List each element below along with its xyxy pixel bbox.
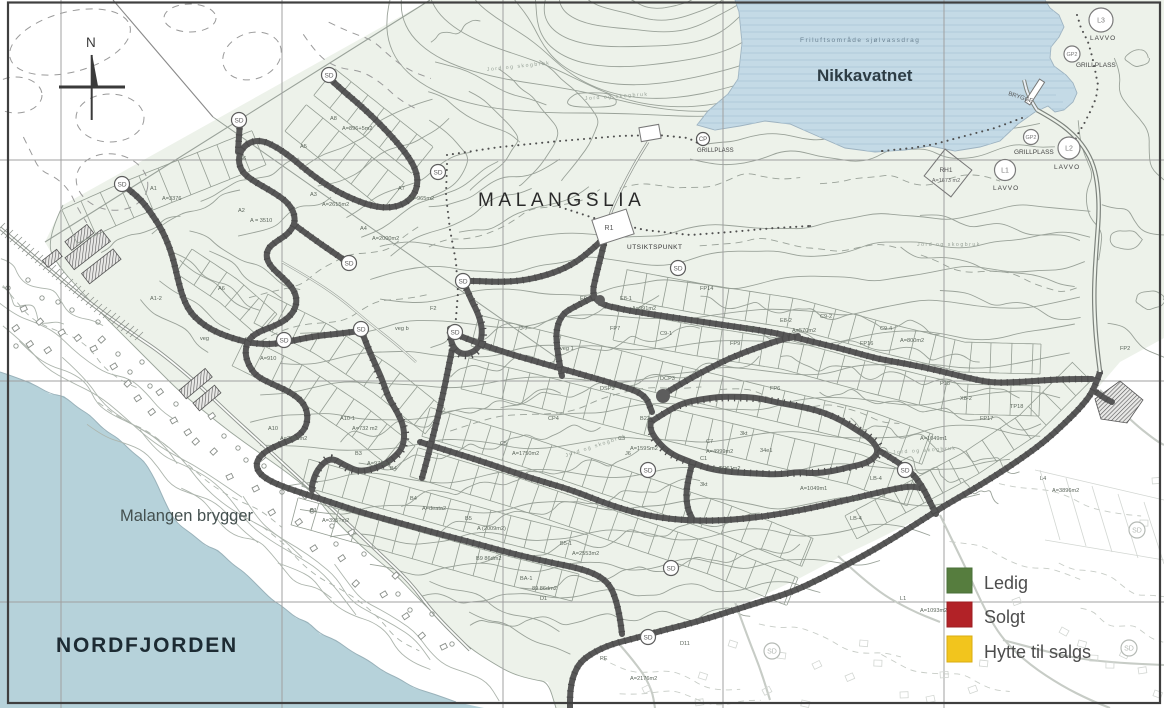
svg-text:SD: SD — [1132, 528, 1142, 535]
svg-text:FP16: FP16 — [860, 341, 873, 347]
svg-text:A2: A2 — [238, 208, 245, 214]
svg-text:A=159Sm2: A=159Sm2 — [630, 446, 658, 452]
svg-text:C9-1: C9-1 — [660, 331, 672, 337]
svg-text:3kt: 3kt — [700, 482, 708, 488]
svg-text:B1: B1 — [310, 508, 317, 514]
svg-text:L1: L1 — [1001, 168, 1009, 175]
svg-text:LAVVO: LAVVO — [993, 185, 1019, 192]
svg-text:D1: D1 — [540, 596, 547, 602]
svg-text:A4: A4 — [360, 226, 367, 232]
svg-text:Solgt: Solgt — [984, 607, 1025, 627]
svg-text:A7: A7 — [398, 186, 405, 192]
svg-text:A=1049m1: A=1049m1 — [800, 486, 827, 492]
svg-text:C5: C5 — [500, 441, 507, 447]
svg-text:E8-2: E8-2 — [780, 318, 792, 324]
svg-text:FP2: FP2 — [1120, 346, 1130, 352]
svg-text:DCP3: DCP3 — [660, 376, 675, 382]
svg-text:J-7: J-7 — [520, 326, 528, 332]
svg-text:D11: D11 — [680, 641, 690, 647]
svg-text:A=deata2: A=deata2 — [422, 506, 446, 512]
svg-text:L2: L2 — [1065, 146, 1073, 153]
svg-text:SD: SD — [643, 634, 652, 641]
svg-text:F2: F2 — [430, 306, 437, 312]
svg-text:SD: SD — [324, 72, 333, 79]
svg-text:SD: SD — [458, 278, 467, 285]
svg-text:SD: SD — [900, 467, 909, 474]
svg-text:A = 3510: A = 3510 — [250, 218, 272, 224]
svg-text:Malangen brygger: Malangen brygger — [120, 507, 254, 525]
svg-text:X8-2: X8-2 — [960, 396, 972, 402]
svg-text:C1: C1 — [700, 456, 707, 462]
svg-text:SD: SD — [673, 265, 682, 272]
svg-text:A=2176m2: A=2176m2 — [630, 676, 657, 682]
svg-text:FP17: FP17 — [980, 416, 993, 422]
svg-text:A1: A1 — [150, 186, 157, 192]
svg-text:veg b: veg b — [395, 326, 409, 332]
svg-text:A=896+5m2: A=896+5m2 — [342, 126, 372, 132]
svg-text:34e1: 34e1 — [760, 448, 772, 454]
svg-text:A=991m2: A=991m2 — [632, 306, 656, 312]
svg-text:A=1093m2: A=1093m2 — [920, 608, 947, 614]
svg-text:GRILLPLASS: GRILLPLASS — [697, 148, 734, 154]
svg-text:NORDFJORDEN: NORDFJORDEN — [56, 634, 238, 657]
svg-text:A8: A8 — [330, 116, 337, 122]
svg-text:A=1750m2: A=1750m2 — [512, 451, 539, 457]
svg-text:A=965m2: A=965m2 — [410, 196, 434, 202]
svg-text:Friluftsområde sjølvassdrag: Friluftsområde sjølvassdrag — [800, 36, 920, 44]
svg-text:SD: SD — [450, 329, 459, 336]
svg-text:A=2615m2: A=2615m2 — [322, 202, 349, 208]
svg-text:Jord og skogbruk: Jord og skogbruk — [917, 242, 981, 248]
svg-text:L4: L4 — [1040, 476, 1046, 482]
svg-text:LAVVO: LAVVO — [1090, 35, 1116, 42]
svg-text:A=2969m2: A=2969m2 — [280, 436, 307, 442]
svg-text:B4: B4 — [410, 496, 417, 502]
svg-text:34g1: 34g1 — [850, 496, 862, 502]
svg-text:A3: A3 — [310, 192, 317, 198]
svg-text:SD: SD — [767, 649, 777, 656]
svg-text:A1-2: A1-2 — [150, 296, 162, 302]
svg-text:A=971m2: A=971m2 — [367, 461, 391, 467]
svg-text:C9-2: C9-2 — [820, 314, 832, 320]
svg-text:FP8: FP8 — [745, 326, 755, 332]
svg-text:A (2009m2): A (2009m2) — [477, 526, 506, 532]
svg-text:P18: P18 — [940, 381, 950, 387]
svg-text:BA-1: BA-1 — [520, 576, 532, 582]
svg-text:FP7: FP7 — [610, 326, 620, 332]
svg-text:A=3376: A=3376 — [162, 196, 181, 202]
svg-text:A=732 m2: A=732 m2 — [352, 426, 378, 432]
svg-text:GP2: GP2 — [1025, 135, 1036, 141]
svg-text:L3: L3 — [1097, 18, 1105, 25]
svg-text:LB-4: LB-4 — [870, 476, 882, 482]
svg-text:TP18: TP18 — [1010, 404, 1023, 410]
svg-text:veg: veg — [200, 336, 209, 342]
svg-text:A=570m2: A=570m2 — [792, 328, 816, 334]
svg-text:FP6: FP6 — [770, 386, 780, 392]
svg-text:Nikkavatnet: Nikkavatnet — [817, 66, 913, 85]
svg-text:FP9: FP9 — [730, 341, 740, 347]
svg-text:GRILLPLASS: GRILLPLASS — [1014, 149, 1054, 156]
svg-text:A6: A6 — [218, 286, 225, 292]
svg-text:UTSIKTSPUNKT: UTSIKTSPUNKT — [627, 244, 682, 251]
svg-text:B5-1: B5-1 — [560, 541, 572, 547]
svg-text:A=1049m1: A=1049m1 — [920, 436, 947, 442]
svg-text:SD: SD — [344, 260, 353, 267]
svg-text:CP4: CP4 — [548, 416, 559, 422]
svg-text:C7: C7 — [706, 439, 713, 445]
svg-text:E8-1: E8-1 — [620, 296, 632, 302]
svg-text:B3: B3 — [355, 451, 362, 457]
svg-text:SD: SD — [356, 326, 365, 333]
svg-text:GRILLPLASS: GRILLPLASS — [1076, 62, 1116, 69]
svg-text:A10: A10 — [268, 426, 278, 432]
svg-text:MALANGSLIA: MALANGSLIA — [478, 190, 645, 211]
svg-text:FP14: FP14 — [700, 286, 713, 292]
svg-text:DSP3: DSP3 — [600, 386, 615, 392]
svg-text:A=395?m2: A=395?m2 — [322, 518, 349, 524]
svg-text:SD: SD — [279, 337, 288, 344]
svg-text:A=1673 m2: A=1673 m2 — [932, 178, 960, 184]
svg-text:GP2: GP2 — [1066, 52, 1077, 58]
svg-text:SD: SD — [643, 467, 652, 474]
svg-text:LAVVO: LAVVO — [1054, 164, 1080, 171]
svg-text:E9: E9 — [580, 296, 587, 302]
svg-text:B5: B5 — [465, 516, 472, 522]
svg-text:B22: B22 — [640, 416, 650, 422]
svg-text:A=2553m2: A=2553m2 — [572, 551, 599, 557]
svg-text:A=PP61m2: A=PP61m2 — [712, 466, 740, 472]
svg-text:A=3896m2: A=3896m2 — [1052, 488, 1079, 494]
svg-text:3kt: 3kt — [740, 431, 748, 437]
svg-text:SD: SD — [433, 169, 442, 176]
svg-text:SD: SD — [234, 117, 243, 124]
svg-text:56: 56 — [240, 156, 246, 162]
svg-text:J6: J6 — [625, 451, 631, 457]
svg-text:veg 1: veg 1 — [560, 346, 574, 352]
svg-text:Ledig: Ledig — [984, 573, 1028, 593]
svg-text:C9-4: C9-4 — [880, 326, 892, 332]
svg-text:N: N — [86, 35, 96, 50]
svg-text:SD: SD — [666, 565, 675, 572]
svg-text:RH1: RH1 — [939, 167, 952, 174]
svg-text:R1: R1 — [605, 225, 614, 232]
svg-text:SD: SD — [117, 181, 126, 188]
svg-text:B4: B4 — [390, 466, 397, 472]
svg-text:A5: A5 — [300, 144, 307, 150]
svg-text:L1: L1 — [900, 596, 906, 602]
svg-text:A=2000m2: A=2000m2 — [372, 236, 399, 242]
svg-text:PE: PE — [600, 656, 608, 662]
svg-text:89 86dm2: 89 86dm2 — [532, 586, 557, 592]
svg-text:LB-4: LB-4 — [850, 516, 862, 522]
svg-text:SD: SD — [1124, 646, 1134, 653]
svg-text:A=800m2: A=800m2 — [900, 338, 924, 344]
svg-text:B9 86dm2: B9 86dm2 — [476, 556, 502, 562]
svg-text:A=4999m2: A=4999m2 — [706, 449, 733, 455]
svg-text:CP: CP — [699, 137, 707, 143]
svg-text:Hytte til salgs: Hytte til salgs — [984, 642, 1091, 662]
svg-text:A=910: A=910 — [260, 356, 276, 362]
svg-text:A10-1: A10-1 — [340, 416, 355, 422]
